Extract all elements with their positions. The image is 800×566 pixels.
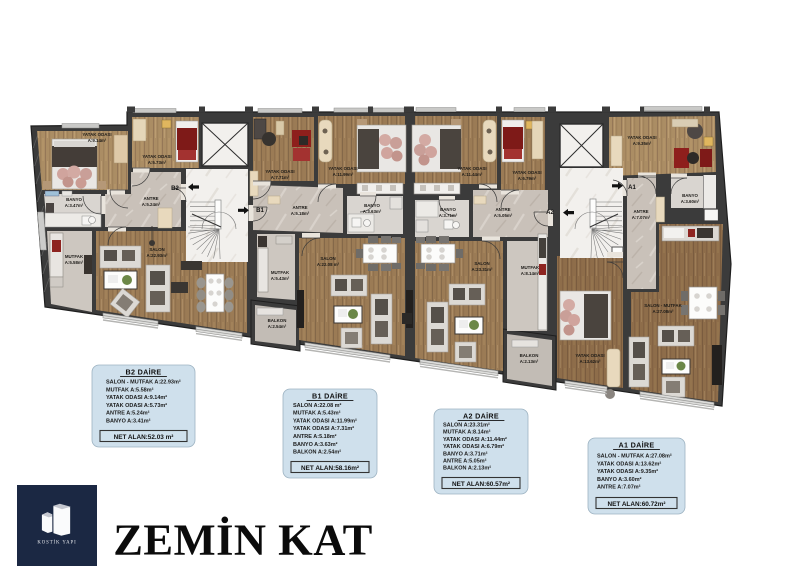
svg-text:YATAK ODASI: YATAK ODASI: [265, 169, 294, 174]
svg-text:ANTRE A:5.05m²: ANTRE A:5.05m²: [443, 458, 487, 465]
svg-text:YATAK ODASI: YATAK ODASI: [457, 166, 486, 171]
svg-text:YATAK ODASI A:9.14m²: YATAK ODASI A:9.14m²: [106, 394, 167, 401]
svg-text:B1 DAİRE: B1 DAİRE: [312, 391, 348, 400]
svg-text:BALKON: BALKON: [520, 353, 539, 358]
svg-text:A:2.54m²: A:2.54m²: [268, 324, 287, 329]
svg-text:YATAK ODASI A:6.79m²: YATAK ODASI A:6.79m²: [443, 443, 504, 450]
svg-text:BALKON A:2.13m²: BALKON A:2.13m²: [443, 465, 491, 472]
svg-text:SALON - MUTFAK A:27.08m²: SALON - MUTFAK A:27.08m²: [597, 453, 672, 460]
svg-text:A:9.35m²: A:9.35m²: [633, 141, 652, 146]
svg-text:A1 DAİRE: A1 DAİRE: [619, 440, 655, 449]
svg-text:A:22.08 m²: A:22.08 m²: [317, 262, 340, 267]
svg-text:MUTFAK: MUTFAK: [521, 265, 540, 270]
svg-text:SALON A:23.31m²: SALON A:23.31m²: [443, 422, 490, 429]
svg-text:SALON - MUTFAK A:22.93m²: SALON - MUTFAK A:22.93m²: [106, 379, 181, 386]
svg-text:A1: A1: [628, 185, 636, 191]
svg-text:BALKON A:2.54m²: BALKON A:2.54m²: [293, 449, 341, 456]
svg-text:BANYO: BANYO: [440, 207, 456, 212]
svg-text:BANYO A:3.60m²: BANYO A:3.60m²: [597, 476, 642, 483]
svg-text:SALON: SALON: [474, 261, 489, 266]
svg-text:KOSTİK YAPI: KOSTİK YAPI: [37, 540, 76, 546]
svg-text:MUTFAK: MUTFAK: [271, 270, 290, 275]
svg-text:ANTRE: ANTRE: [633, 209, 648, 214]
svg-text:BANYO: BANYO: [682, 193, 698, 198]
svg-text:A2: A2: [546, 210, 554, 216]
svg-text:YATAK ODASI A:11.44m²: YATAK ODASI A:11.44m²: [443, 436, 507, 443]
svg-text:BANYO A:3.71m²: BANYO A:3.71m²: [443, 450, 488, 457]
svg-text:MUTFAK A:5.43m²: MUTFAK A:5.43m²: [293, 410, 341, 417]
svg-text:SALON: SALON: [320, 256, 335, 261]
svg-text:MUTFAK A:8.14m²: MUTFAK A:8.14m²: [443, 429, 491, 436]
svg-text:A:5.24m²: A:5.24m²: [142, 202, 161, 207]
svg-text:ANTRE: ANTRE: [143, 196, 158, 201]
svg-text:YATAK ODASI: YATAK ODASI: [82, 132, 111, 137]
svg-text:ANTRE A:5.24m²: ANTRE A:5.24m²: [106, 410, 150, 417]
svg-text:A:5.73m²: A:5.73m²: [148, 160, 167, 165]
svg-text:YATAK ODASI A:9.35m²: YATAK ODASI A:9.35m²: [597, 468, 658, 475]
svg-text:B1: B1: [256, 208, 264, 214]
svg-text:SALON: SALON: [149, 247, 164, 252]
svg-text:YATAK ODASI: YATAK ODASI: [142, 154, 171, 159]
svg-text:A:9.14m²: A:9.14m²: [88, 138, 107, 143]
svg-text:YATAK ODASI: YATAK ODASI: [575, 353, 604, 358]
svg-text:NET ALAN:60.57m²: NET ALAN:60.57m²: [452, 481, 510, 488]
svg-text:A:5.05m²: A:5.05m²: [494, 213, 513, 218]
svg-text:A:27.08m²: A:27.08m²: [653, 309, 675, 314]
svg-text:A:23.31m²: A:23.31m²: [472, 267, 494, 272]
svg-text:YATAK ODASI: YATAK ODASI: [328, 166, 357, 171]
svg-text:YATAK ODASI A:11.99m²: YATAK ODASI A:11.99m²: [293, 417, 357, 424]
svg-text:A:11.99m²: A:11.99m²: [333, 172, 354, 177]
svg-text:BALKON: BALKON: [268, 318, 287, 323]
svg-text:ANTRE: ANTRE: [495, 207, 510, 212]
svg-text:NET ALAN:60.72m²: NET ALAN:60.72m²: [608, 501, 666, 508]
svg-text:YATAK ODASI A:13.62m²: YATAK ODASI A:13.62m²: [597, 460, 661, 467]
svg-text:A:8.14m²: A:8.14m²: [521, 271, 540, 276]
svg-text:B2: B2: [171, 186, 179, 192]
svg-text:A:11.44m²: A:11.44m²: [462, 172, 483, 177]
svg-text:A:3.71m²: A:3.71m²: [439, 213, 458, 218]
svg-text:ANTRE A:5.18m²: ANTRE A:5.18m²: [293, 433, 337, 440]
svg-text:BANYO: BANYO: [364, 203, 380, 208]
svg-text:A:22.93m²: A:22.93m²: [147, 253, 169, 258]
svg-text:YATAK ODASI A:5.73m²: YATAK ODASI A:5.73m²: [106, 402, 167, 409]
svg-text:A2 DAİRE: A2 DAİRE: [463, 411, 499, 420]
svg-text:YATAK ODASI A:7.31m²: YATAK ODASI A:7.31m²: [293, 425, 354, 432]
svg-text:ANTRE A:7.07m²: ANTRE A:7.07m²: [597, 484, 641, 491]
svg-text:MUTFAK A:5.58m²: MUTFAK A:5.58m²: [106, 386, 154, 393]
svg-text:A:3.60m²: A:3.60m²: [681, 199, 700, 204]
svg-text:B2 DAİRE: B2 DAİRE: [126, 367, 162, 376]
svg-text:BANYO A:3.41m²: BANYO A:3.41m²: [106, 418, 151, 425]
svg-text:NET ALAN:52.03 m²: NET ALAN:52.03 m²: [114, 434, 174, 441]
svg-text:SALON - MUTFAK: SALON - MUTFAK: [644, 303, 682, 308]
svg-text:BANYO A:3.63m²: BANYO A:3.63m²: [293, 441, 338, 448]
svg-text:SALON A:22.08 m²: SALON A:22.08 m²: [293, 402, 342, 409]
svg-text:NET ALAN:58.16m²: NET ALAN:58.16m²: [301, 465, 359, 472]
svg-text:MUTFAK: MUTFAK: [65, 254, 84, 259]
svg-text:A:7.07m²: A:7.07m²: [632, 215, 651, 220]
svg-text:YATAK ODASI: YATAK ODASI: [627, 135, 656, 140]
svg-text:A:2.13m²: A:2.13m²: [520, 359, 539, 364]
svg-text:A:7.71m²: A:7.71m²: [271, 175, 290, 180]
svg-text:A:5.43m²: A:5.43m²: [271, 276, 290, 281]
svg-text:ANTRE: ANTRE: [292, 205, 307, 210]
svg-text:A:13.62m²: A:13.62m²: [580, 359, 602, 364]
svg-text:ZEMİN KAT: ZEMİN KAT: [113, 515, 373, 565]
svg-text:YATAK ODASI: YATAK ODASI: [512, 170, 541, 175]
svg-text:A:3.47m²: A:3.47m²: [65, 203, 84, 208]
svg-text:BANYO: BANYO: [66, 197, 82, 202]
svg-text:A:6.79m²: A:6.79m²: [518, 176, 537, 181]
svg-text:A:5.18m²: A:5.18m²: [291, 211, 310, 216]
svg-text:A:5.58m²: A:5.58m²: [65, 260, 84, 265]
svg-text:A:3.63m²: A:3.63m²: [363, 209, 382, 214]
